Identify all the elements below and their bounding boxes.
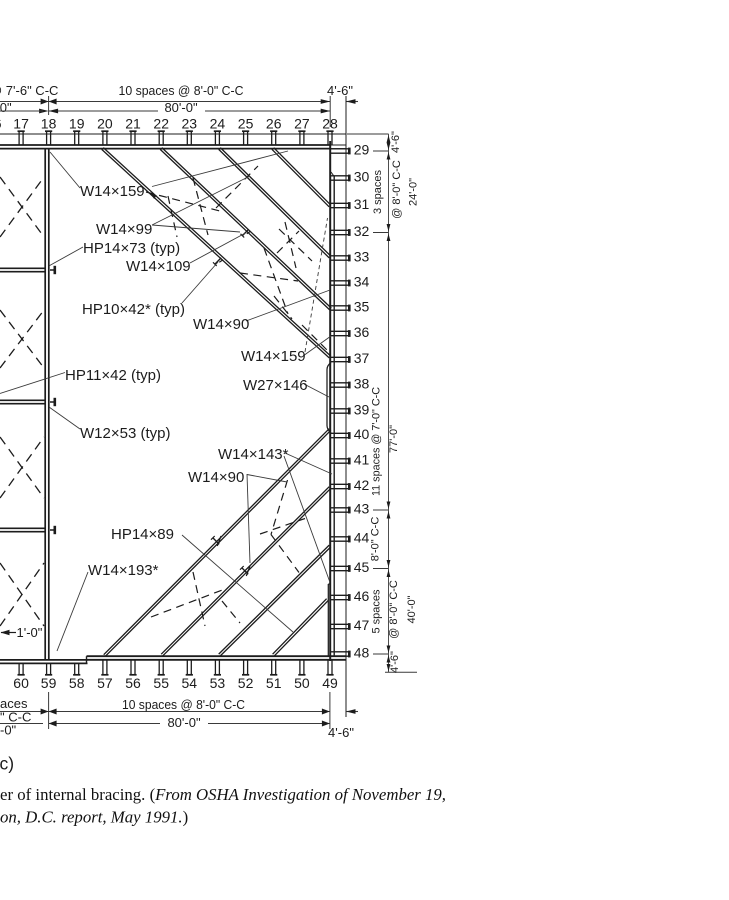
- svg-text:24: 24: [210, 116, 226, 132]
- svg-text:18: 18: [41, 116, 57, 132]
- svg-text:W12×53 (typ): W12×53 (typ): [80, 425, 170, 442]
- svg-text:8'-0" C-C: 8'-0" C-C: [370, 517, 382, 562]
- svg-text:4'-6": 4'-6": [328, 725, 354, 740]
- svg-text:53: 53: [210, 675, 226, 691]
- svg-text:60: 60: [13, 675, 29, 691]
- svg-text:44: 44: [354, 530, 370, 546]
- svg-text:28: 28: [322, 116, 338, 132]
- svg-text:HP14×73 (typ): HP14×73 (typ): [83, 240, 180, 257]
- svg-text:58: 58: [69, 675, 85, 691]
- svg-text:4'-6": 4'-6": [327, 83, 353, 98]
- svg-text:W14×159: W14×159: [241, 348, 306, 365]
- svg-text:W14×159: W14×159: [80, 183, 145, 200]
- svg-text:W14×90: W14×90: [193, 316, 249, 333]
- svg-text:er of internal bracing. (From: er of internal bracing. (From OSHA Inves…: [0, 785, 446, 804]
- svg-text:59: 59: [41, 675, 57, 691]
- svg-text:on, D.C. report, May 1991.): on, D.C. report, May 1991.): [0, 808, 188, 827]
- svg-text:c): c): [0, 754, 14, 774]
- svg-text:41: 41: [354, 452, 370, 468]
- svg-text:@ 7'-6" C-C: @ 7'-6" C-C: [0, 83, 58, 98]
- svg-text:24'-0": 24'-0": [408, 178, 420, 206]
- svg-text:51: 51: [266, 675, 282, 691]
- svg-text:42: 42: [354, 477, 370, 493]
- svg-text:38: 38: [354, 376, 370, 392]
- svg-text:23: 23: [182, 116, 198, 132]
- svg-text:W14×193*: W14×193*: [88, 562, 159, 579]
- svg-text:26: 26: [266, 116, 282, 132]
- svg-text:-0": -0": [0, 723, 17, 738]
- svg-text:56: 56: [125, 675, 141, 691]
- svg-text:36: 36: [354, 324, 370, 340]
- svg-text:80'-0": 80'-0": [164, 100, 198, 115]
- svg-text:27: 27: [294, 116, 310, 132]
- svg-text:49: 49: [322, 675, 338, 691]
- svg-text:@ 8'-0" C-C: @ 8'-0" C-C: [388, 580, 400, 639]
- svg-text:4'-6": 4'-6": [389, 651, 401, 673]
- svg-text:80'-0": 80'-0": [167, 715, 201, 730]
- svg-text:35: 35: [354, 299, 370, 315]
- svg-text:16: 16: [0, 116, 2, 132]
- svg-text:45: 45: [354, 559, 370, 575]
- svg-text:20: 20: [97, 116, 113, 132]
- svg-text:1'-0": 1'-0": [17, 625, 43, 640]
- svg-text:57: 57: [97, 675, 113, 691]
- svg-text:5 spaces: 5 spaces: [371, 589, 383, 634]
- svg-text:40'-0": 40'-0": [406, 595, 418, 623]
- svg-text:17: 17: [13, 116, 29, 132]
- svg-text:@ 8'-0" C-C: @ 8'-0" C-C: [391, 160, 403, 219]
- svg-text:32: 32: [354, 223, 370, 239]
- svg-text:22: 22: [153, 116, 169, 132]
- svg-text:43: 43: [354, 501, 370, 517]
- svg-text:21: 21: [125, 116, 141, 132]
- svg-text:W27×146: W27×146: [243, 377, 308, 394]
- svg-text:39: 39: [354, 402, 370, 418]
- svg-text:50: 50: [294, 675, 310, 691]
- svg-text:52: 52: [238, 675, 254, 691]
- svg-text:31: 31: [354, 196, 370, 212]
- svg-text:19: 19: [69, 116, 85, 132]
- svg-text:10 spaces @ 8'-0" C-C: 10 spaces @ 8'-0" C-C: [122, 697, 245, 712]
- svg-text:HP14×89: HP14×89: [111, 526, 174, 543]
- svg-text:77'-0": 77'-0": [388, 425, 400, 453]
- svg-text:55: 55: [153, 675, 169, 691]
- svg-text:4'-6": 4'-6": [390, 131, 402, 153]
- svg-text:'-0": '-0": [0, 100, 12, 115]
- svg-text:30: 30: [354, 169, 370, 185]
- svg-text:W14×109: W14×109: [126, 258, 191, 275]
- svg-text:25: 25: [238, 116, 254, 132]
- svg-text:29: 29: [354, 142, 370, 158]
- svg-text:11 spaces @ 7'-0" C-C: 11 spaces @ 7'-0" C-C: [371, 387, 383, 496]
- svg-text:3 spaces: 3 spaces: [372, 169, 384, 214]
- svg-text:W14×90: W14×90: [188, 469, 244, 486]
- svg-text:54: 54: [182, 675, 198, 691]
- svg-text:40: 40: [354, 426, 370, 442]
- svg-text:W14×143*: W14×143*: [218, 446, 289, 463]
- svg-text:47: 47: [354, 617, 370, 633]
- svg-text:W14×99: W14×99: [96, 221, 152, 238]
- svg-text:33: 33: [354, 249, 370, 265]
- svg-text:10 spaces @ 8'-0" C-C: 10 spaces @ 8'-0" C-C: [119, 83, 244, 98]
- svg-text:46: 46: [354, 588, 370, 604]
- svg-text:34: 34: [354, 274, 370, 290]
- svg-text:37: 37: [354, 350, 370, 366]
- svg-text:48: 48: [354, 645, 370, 661]
- svg-text:HP10×42* (typ): HP10×42* (typ): [82, 301, 185, 318]
- svg-text:HP11×42 (typ): HP11×42 (typ): [65, 367, 161, 384]
